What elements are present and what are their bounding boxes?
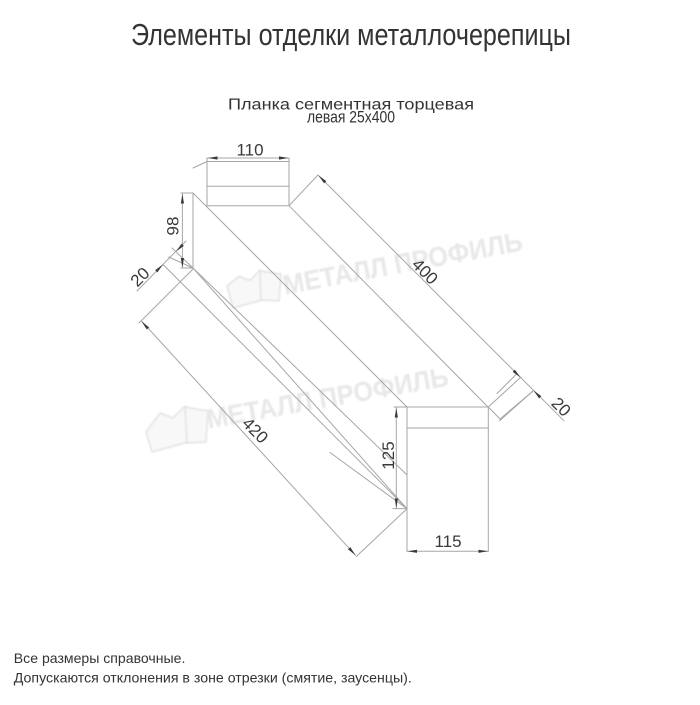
svg-text:115: 115 <box>434 532 461 551</box>
svg-text:125: 125 <box>379 441 398 469</box>
svg-text:Все размеры справочные.: Все размеры справочные. <box>14 650 186 666</box>
svg-text:левая 25х400: левая 25х400 <box>307 109 395 127</box>
svg-text:Элементы отделки металлочерепи: Элементы отделки металлочерепицы <box>131 18 571 52</box>
svg-text:98: 98 <box>164 217 183 236</box>
svg-text:Допускаются отклонения в зоне: Допускаются отклонения в зоне отрезки (с… <box>14 670 412 686</box>
svg-text:110: 110 <box>236 141 263 160</box>
